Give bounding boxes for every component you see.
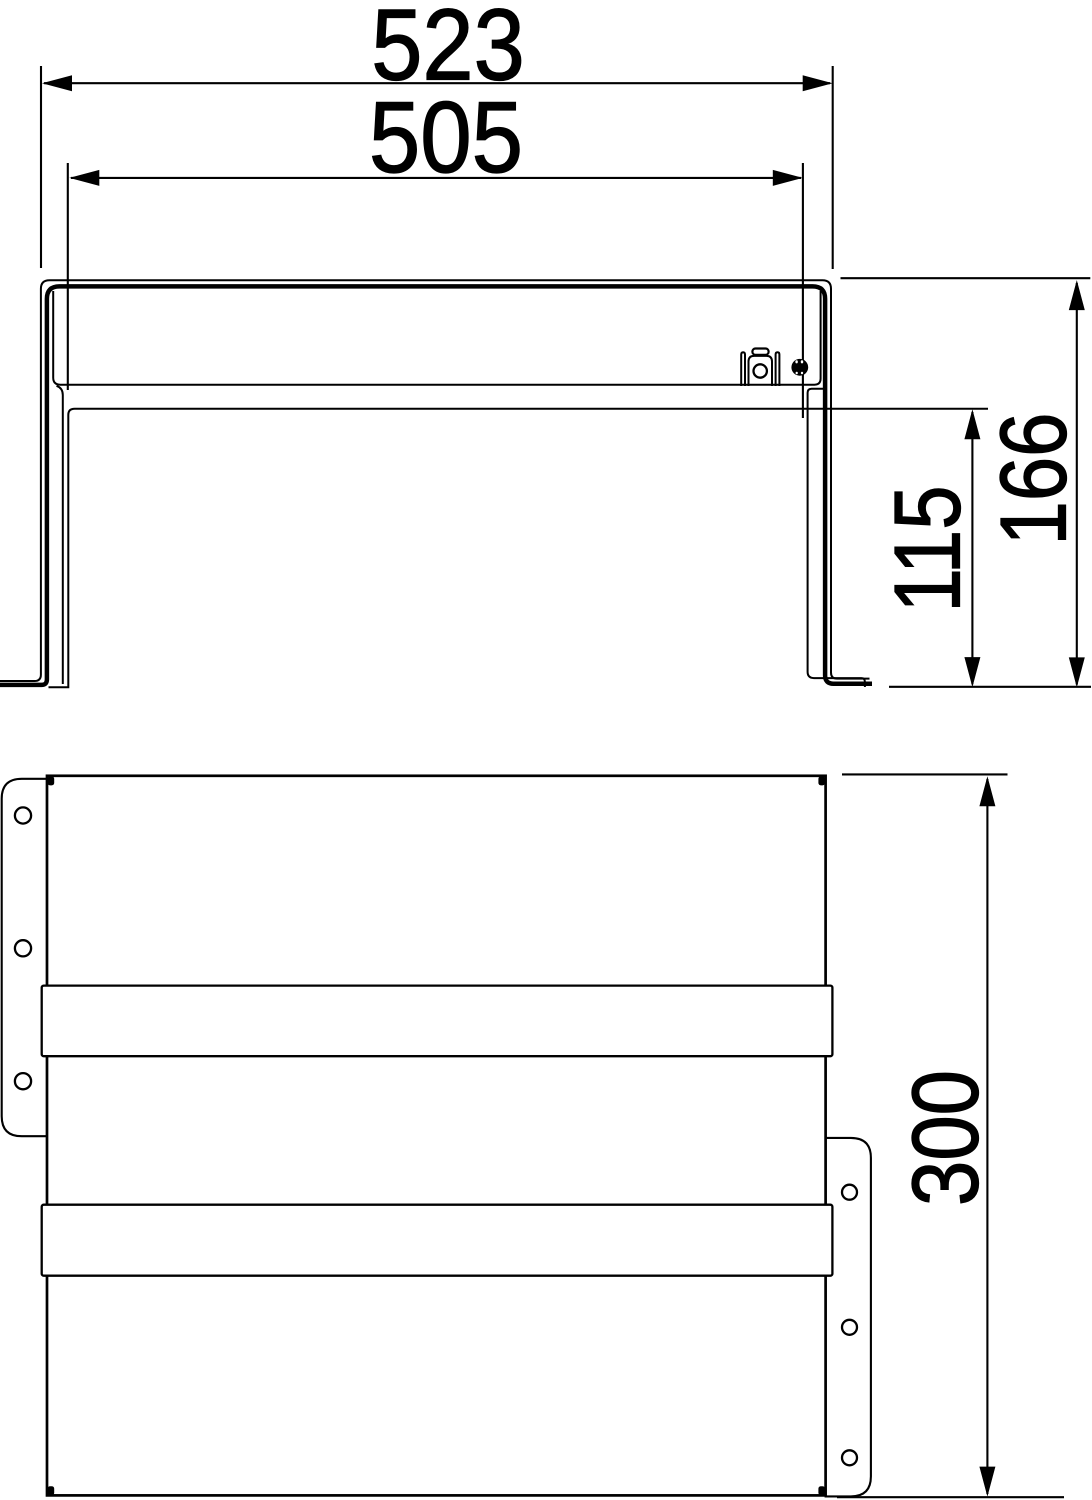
svg-text:115: 115 <box>875 486 980 613</box>
svg-text:166: 166 <box>981 413 1086 546</box>
svg-text:300: 300 <box>893 1070 998 1206</box>
